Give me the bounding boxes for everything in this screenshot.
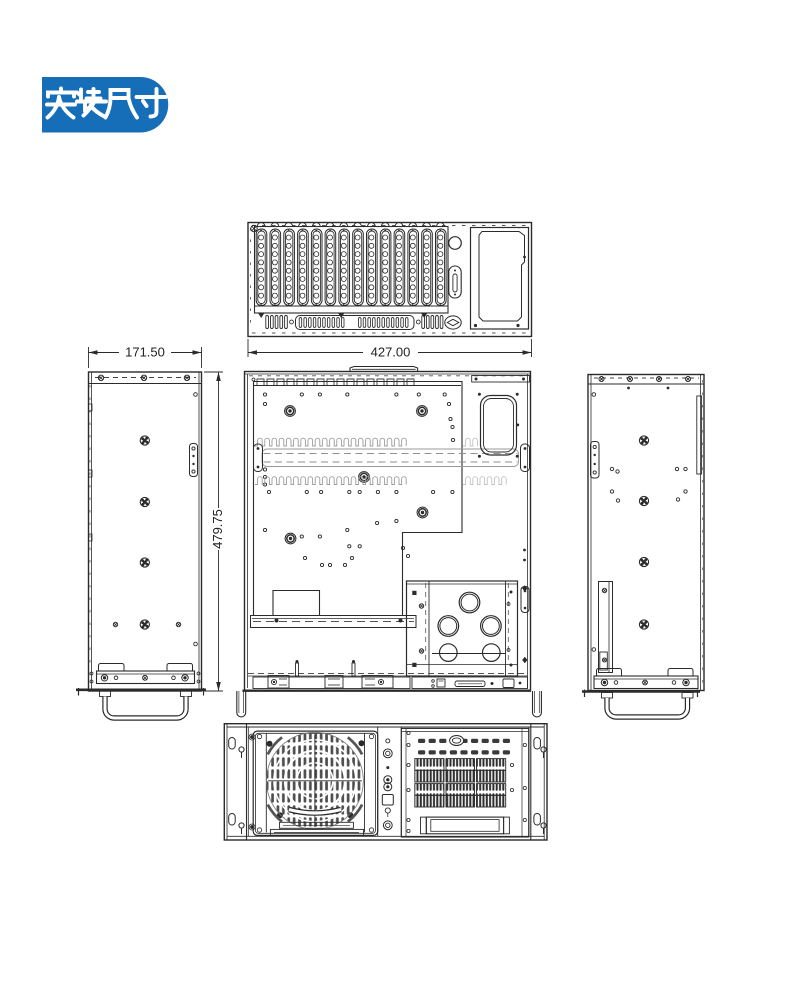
svg-text:479.75: 479.75 (210, 509, 225, 549)
svg-text:171.50: 171.50 (125, 345, 165, 360)
svg-text:427.00: 427.00 (371, 345, 411, 360)
